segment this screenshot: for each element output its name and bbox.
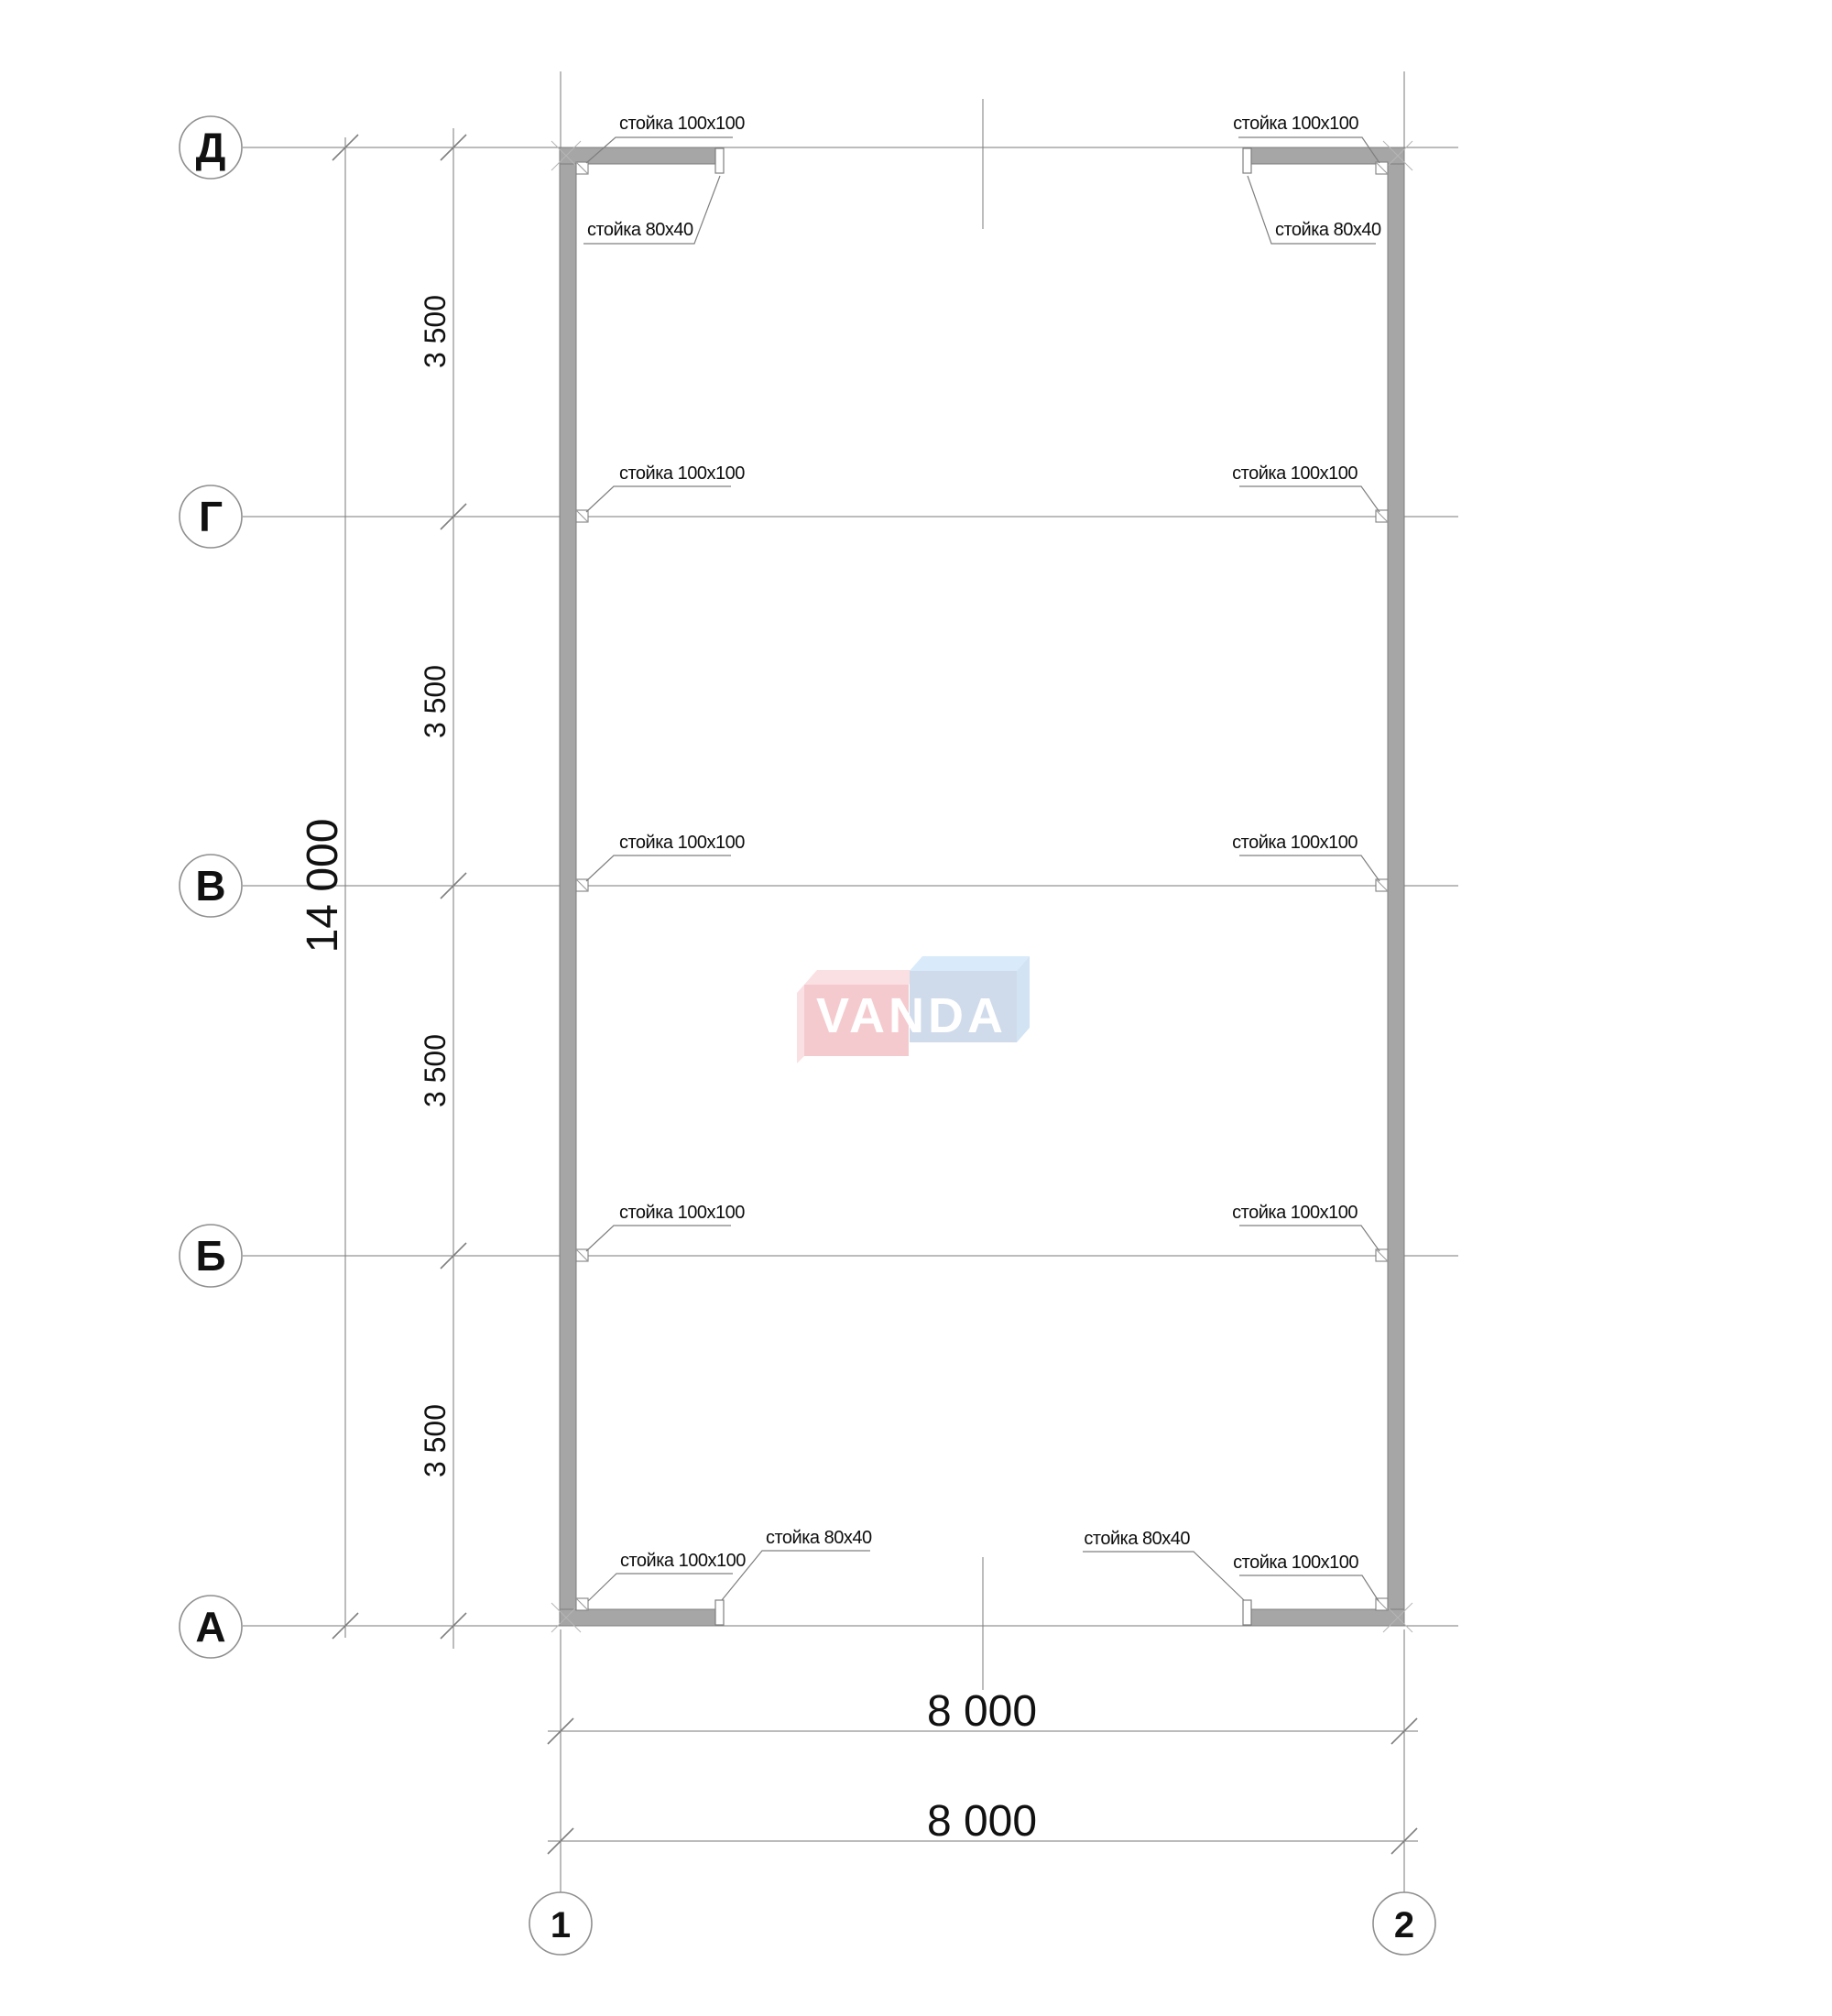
post-80x40-bottom-right [1243, 1600, 1251, 1625]
callout-text: стойка 100x100 [620, 1551, 746, 1571]
callout-p80-top-right: стойка 80x40 [1248, 176, 1381, 244]
callout-text: стойка 100x100 [1233, 1553, 1358, 1573]
callout-p100-right-row-v: стойка 100x100 [1232, 833, 1379, 881]
callout-text: стойка 100x100 [619, 463, 745, 484]
logo-pink-top-face [804, 970, 921, 985]
callout-p100-left-row-v: стойка 100x100 [586, 833, 745, 881]
wall-top-left-segment [560, 147, 715, 164]
axis-label-row-d: Д [196, 124, 226, 171]
logo-blue-side-face [1017, 956, 1030, 1042]
logo-blue-top-face [910, 956, 1030, 971]
dim-text-width-top: 8 000 [927, 1687, 1037, 1736]
floor-plan-page: VANDA [0, 0, 1832, 2016]
axis-label-row-b: Б [195, 1232, 225, 1280]
bottom-dimensions: 8 000 8 000 [548, 1687, 1418, 1854]
callout-text: стойка 100x100 [619, 114, 745, 134]
callout-text: стойка 80x40 [1084, 1529, 1190, 1549]
callout-text: стойка 80x40 [1275, 220, 1381, 240]
left-dimensions: 14 000 3 500 3 500 3 500 3 500 [299, 128, 466, 1649]
post-80x40-top-left [715, 148, 724, 173]
dim-text-overall-height: 14 000 [299, 819, 347, 954]
axis-label-row-g: Г [199, 493, 223, 540]
callout-p80-bottom-right: стойка 80x40 [1083, 1529, 1244, 1600]
post-100x100-corner-tl [576, 162, 588, 174]
post-100x100-right-row-b [1376, 1249, 1388, 1261]
axis-bubble-row-b: Б [180, 1225, 242, 1287]
axis-bubble-row-v: В [180, 855, 242, 917]
dim-text-bay-4: 3 500 [419, 1404, 452, 1477]
axis-label-row-v: В [195, 862, 225, 910]
dim-text-width-bottom: 8 000 [927, 1797, 1037, 1846]
axis-bubble-row-d: Д [180, 116, 242, 179]
wall-bottom-left-segment [560, 1609, 715, 1626]
axis-label-col-2: 2 [1394, 1905, 1414, 1945]
callout-text: стойка 100x100 [1232, 833, 1358, 853]
callout-text: стойка 100x100 [1232, 463, 1358, 484]
post-100x100-right-row-v [1376, 879, 1388, 891]
post-80x40-top-right [1243, 148, 1251, 173]
callout-text: стойка 100x100 [1233, 114, 1358, 134]
dim-text-bay-2: 3 500 [419, 665, 452, 738]
floor-plan-svg: VANDA [0, 0, 1832, 2016]
walls [551, 141, 1412, 1632]
axis-label-row-a: А [195, 1603, 225, 1651]
wall-bottom-right-segment [1251, 1609, 1404, 1626]
post-100x100-right-row-g [1376, 510, 1388, 522]
posts-80x40 [715, 148, 1251, 1625]
dim-text-bay-1: 3 500 [419, 295, 452, 368]
vanda-watermark: VANDA [797, 956, 1030, 1063]
col-axis-bubbles: 1 2 [529, 1892, 1435, 1955]
callout-p100-bottom-left: стойка 100x100 [588, 1551, 746, 1601]
callout-text: стойка 100x100 [1232, 1203, 1358, 1223]
axis-bubble-col-2: 2 [1373, 1892, 1435, 1955]
dim-text-bay-3: 3 500 [419, 1034, 452, 1107]
wall-left [560, 147, 576, 1626]
callout-p100-bottom-right: стойка 100x100 [1233, 1553, 1379, 1601]
callout-p100-right-row-g: стойка 100x100 [1232, 463, 1379, 512]
axis-label-col-1: 1 [551, 1905, 571, 1945]
callout-p100-left-row-b: стойка 100x100 [586, 1203, 745, 1251]
row-grid-lines [243, 147, 1458, 1626]
callout-p80-top-left: стойка 80x40 [583, 176, 720, 244]
post-callouts: стойка 100x100 стойка 80x40 стойка 100x1… [583, 114, 1381, 1601]
post-80x40-bottom-left [715, 1600, 724, 1625]
axis-bubble-col-1: 1 [529, 1892, 592, 1955]
row-axis-bubbles: Д Г В Б А [180, 116, 242, 1658]
post-100x100-corner-tr [1376, 162, 1388, 174]
axis-bubble-row-a: А [180, 1596, 242, 1658]
logo-pink-side-face [797, 985, 804, 1063]
wall-right [1388, 147, 1404, 1626]
callout-p100-right-row-b: стойка 100x100 [1232, 1203, 1379, 1251]
post-100x100-corner-bl [576, 1598, 588, 1610]
callout-text: стойка 100x100 [619, 1203, 745, 1223]
callout-p100-left-row-g: стойка 100x100 [586, 463, 745, 512]
logo-wordmark: VANDA [816, 988, 1007, 1043]
callout-text: стойка 80x40 [587, 220, 693, 240]
callout-text: стойка 100x100 [619, 833, 745, 853]
callout-text: стойка 80x40 [766, 1528, 872, 1548]
wall-top-right-segment [1251, 147, 1404, 164]
axis-bubble-row-g: Г [180, 485, 242, 548]
